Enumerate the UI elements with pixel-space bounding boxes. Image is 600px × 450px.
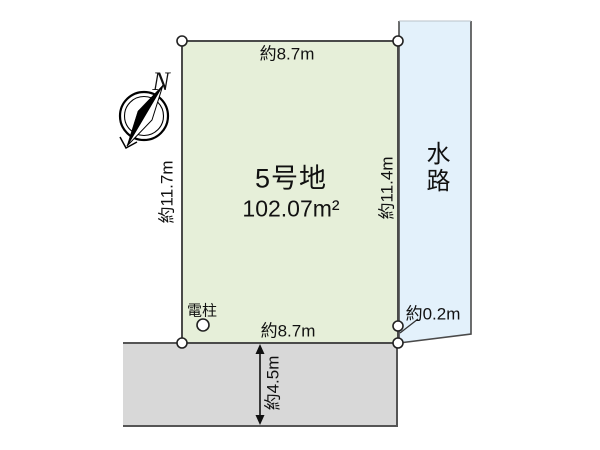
compass-north-label: N	[152, 69, 169, 95]
waterway-label: 水路	[423, 141, 447, 195]
dimension-road-width-label: 約4.5m	[265, 356, 282, 411]
corner-marker-bottom-left	[177, 338, 187, 348]
dimension-bottom-label: 約8.7m	[261, 323, 316, 340]
dimension-waterway-offset-label: 約0.2m	[406, 306, 461, 323]
dimension-left-label: 約11.7m	[159, 161, 176, 224]
site-plan-canvas	[0, 0, 600, 450]
plot-name-label: 5号地	[255, 166, 327, 193]
corner-marker-top-right	[393, 36, 403, 46]
dimension-right-label: 約11.4m	[379, 157, 396, 220]
plot-area-label: 102.07m²	[242, 198, 339, 221]
utility-pole-marker	[197, 319, 209, 331]
dimension-top-label: 約8.7m	[260, 46, 315, 63]
utility-pole-label: 電柱	[187, 304, 217, 319]
corner-marker-right-offset	[393, 321, 403, 331]
corner-marker-top-left	[177, 36, 187, 46]
site-plan-diagram: 約8.7m 約11.7m 約11.4m 約8.7m 約0.2m 約4.5m 5号…	[0, 0, 600, 450]
corner-marker-bottom-right	[393, 338, 403, 348]
